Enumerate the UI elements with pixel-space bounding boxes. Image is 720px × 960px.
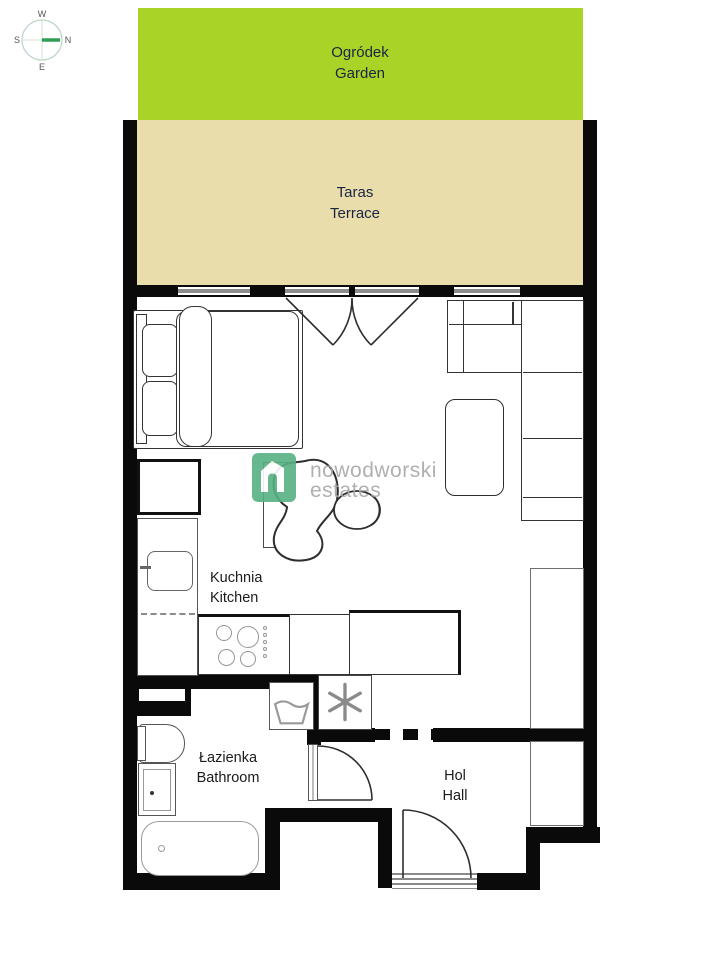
bathroom-label: Łazienka Bathroom <box>148 748 308 788</box>
french-door <box>286 298 418 345</box>
watermark: nowodworski estates <box>252 453 296 502</box>
floor-plan: W S N E Ogródek Garden Taras Terrace Kuc… <box>0 0 720 960</box>
brand-name: nowodworski estates <box>310 461 437 501</box>
entry-door <box>403 810 471 878</box>
bathroom-label-pl: Łazienka <box>148 748 308 768</box>
kitchen-label-en: Kitchen <box>210 588 262 608</box>
compass-south-label: S <box>14 35 20 45</box>
garden-label-en: Garden <box>260 63 460 84</box>
compass-icon: W S N E <box>12 6 76 74</box>
compass-east-label: E <box>39 62 45 72</box>
terrace-label: Taras Terrace <box>255 182 455 224</box>
bathroom-door <box>318 746 372 800</box>
kitchen-label: Kuchnia Kitchen <box>210 568 262 608</box>
hall-label-pl: Hol <box>395 766 515 786</box>
hall-label: Hol Hall <box>395 766 515 806</box>
compass-west-label: W <box>38 9 47 19</box>
garden-label: Ogródek Garden <box>260 42 460 84</box>
terrace-label-en: Terrace <box>255 203 455 224</box>
bathroom-label-en: Bathroom <box>148 768 308 788</box>
kitchen-label-pl: Kuchnia <box>210 568 262 588</box>
hall-label-en: Hall <box>395 786 515 806</box>
terrace-label-pl: Taras <box>255 182 455 203</box>
brand-line2: estates <box>310 481 437 501</box>
garden-label-pl: Ogródek <box>260 42 460 63</box>
brand-logo-icon <box>252 453 296 502</box>
compass-north-label: N <box>65 35 72 45</box>
brand-line1: nowodworski <box>310 461 437 481</box>
